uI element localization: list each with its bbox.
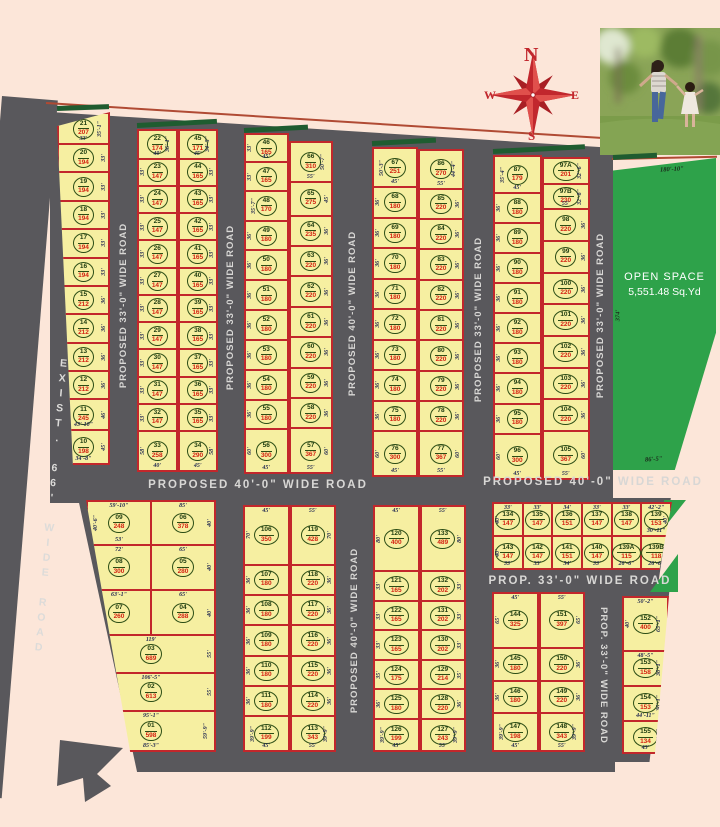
plot-number: 06 [177,515,188,524]
plot-number: 38 [192,328,203,337]
dim-label: 33' [457,612,463,620]
plot-circle: 141151 [555,543,580,563]
dim-label: 55' [562,201,570,207]
plot-number: 09 [113,515,124,524]
plot-circle: 100220 [553,279,578,299]
dim-label: 33' [376,612,382,620]
plot-area: 165 [391,646,402,654]
dim-label: 45' [194,151,202,157]
plot-area: 248 [114,523,125,531]
plot-number: 88 [512,200,523,209]
dim-label: 36' [247,321,253,329]
plot-number: 57 [305,443,316,452]
plot-circle: 103220 [553,374,578,394]
plot-area: 613 [146,693,157,701]
plot-number: 91 [512,290,523,299]
road-label-text: PROPOSED 40'-0" WIDE ROAD [349,548,360,713]
plot-area: 220 [437,705,448,713]
layout-map: EXIST. 66' WIDE ROAD N W E S [0,0,720,827]
plot-circle: 85220 [430,194,451,214]
plot-block-F: 0924859'-10"40'-6"53'0637885'40'0830072'… [86,500,216,752]
plot-number: 137 [589,512,604,521]
dim-label: 36' [375,229,381,237]
road-label-text: PROPOSED 33'-0" WIDE ROAD [596,232,607,397]
plot-circle: 52180 [256,315,277,335]
plot-101: 10122036' [543,304,590,336]
dim-label: 55' [207,688,213,696]
plot-92: 9218036' [494,313,541,343]
plot-area: 180 [261,671,272,679]
dim-label: 36' [101,296,107,304]
plot-area: 179 [512,175,523,183]
plot-69: 6918036' [373,218,417,249]
plot-area: 220 [436,386,447,394]
plot-number: 62 [305,284,316,293]
plot-number: 150 [554,656,569,665]
plot-85: 8522036' [419,189,463,219]
plot-circle: 66310 [300,152,321,172]
plot-area: 153 [640,704,651,712]
plot-circle: 146180 [503,687,528,707]
plot-circle: 132202 [430,576,455,596]
plot-107: 10718036' [244,565,289,595]
plot-circle: 64235 [300,221,321,241]
dim-label: 44'-4" [451,161,457,177]
plot-51: 5118036' [245,280,288,310]
plot-circle: 77367 [430,444,451,464]
plot-64: 6423536' [290,216,333,246]
dim-label: 33' [140,223,146,231]
dim-label: 50'-3" [379,160,385,176]
plot-area: 220 [307,611,318,619]
dim-label: 33' [209,332,215,340]
plot-61: 6122036' [290,307,333,337]
dim-label: 36' [324,318,330,326]
plot-row: 0924859'-10"40'-6"53'0637885'40' [87,501,215,545]
plot-area: 147 [591,553,602,561]
plot-area: 165 [192,309,203,317]
dim-label: 33' [504,505,512,511]
dim-label: 33' [101,154,107,162]
dim-label: 34'-5" [205,136,211,152]
plot-149: 14922036' [540,681,585,714]
dim-label: 65' [179,547,187,553]
plot-circle: 60220 [300,342,321,362]
dim-label: 33' [376,641,382,649]
dim-label: 33' [140,168,146,176]
dim-label: 33' [140,414,146,422]
plot-number: 50 [261,257,272,266]
dim-label: 26'-6" [648,561,664,567]
plot-66: 6631050'-7"55' [290,142,333,182]
plot-number: 149 [554,689,569,698]
plot-circle: 75180 [384,406,405,426]
plot-number: 121 [389,578,404,587]
plot-area: 220 [436,265,447,273]
dim-label: 60' [247,447,253,455]
plot-60: 6022036' [290,337,333,367]
plot-113: 11334339'-9"55' [291,716,336,751]
plot-circle: 83220 [430,255,451,275]
plot-52: 5218036' [245,310,288,340]
dim-label: 36' [246,667,252,675]
plot-73: 7318036' [373,340,417,371]
plot-114: 11422036' [291,686,336,716]
dim-label: 40' [625,620,631,628]
plot-35: 3516533' [179,404,218,431]
plot-number: 64 [305,223,316,232]
site-photo [600,28,720,155]
dim-label: 33' [209,386,215,394]
plot-54: 5418036' [245,370,288,400]
plot-circle: 47165 [256,167,277,187]
dim-label: 33' [80,136,88,142]
plot-26: 2614733' [138,240,177,267]
plot-number: 79 [435,378,446,387]
dim-label: 33' [140,332,146,340]
plot-139: 13915342'-2"40'30'-11" [641,503,671,536]
plot-number: 46 [261,140,272,149]
plot-34: 3429058'45' [179,431,218,471]
plot-23: 2314733' [138,159,177,186]
plot-area: 147 [152,173,163,181]
dim-label: 33' [247,173,253,181]
plot-number: 127 [435,727,450,736]
plot-circle: 142147 [525,543,550,563]
plot-number: 134 [500,512,515,521]
plot-area: 147 [152,282,163,290]
dim-label: 55' [439,743,447,749]
dim-label: 59'-10" [110,503,129,509]
dim-label: 36' [455,382,461,390]
plot-25: 2514733' [138,213,177,240]
plot-number: 02 [145,684,156,693]
plot-row: 03689119'56'-5"55' [87,635,215,673]
plot-area: 198 [78,448,89,456]
dim-label: 42'-2" [648,505,664,511]
plot-71: 7118036' [373,279,417,310]
plot-area: 288 [178,613,189,621]
plot-circle: 138147 [614,510,639,530]
plot-area: 180 [261,236,272,244]
plot-number: 133 [435,531,450,540]
dim-label: 55' [558,595,566,601]
plot-139B: 139B11826'-6" [641,536,671,569]
plot-82: 8222036' [419,280,463,310]
plot-area: 343 [307,734,318,742]
plot-number: 98 [560,217,571,226]
plot-106: 10635045'70' [244,506,289,565]
plot-88: 8818036' [494,193,541,223]
dim-label: 65'-1" [656,616,662,632]
plot-number: 18 [78,207,89,216]
plot-area: 220 [560,257,571,265]
plot-number: 155 [638,729,653,738]
plot-144: 14432545'65' [493,593,538,648]
plot-139A: 139A11526'-6" [612,536,642,569]
plot-number: 37 [192,355,203,364]
plot-area: 147 [532,520,543,528]
plot-number: 28 [152,300,163,309]
plot-circle: 109180 [254,631,279,651]
plot-number: 43 [192,191,203,200]
plot-28: 2814733' [138,295,177,322]
plot-area: 180 [512,209,523,217]
plot-number: 84 [435,226,446,235]
dim-label: 80' [376,535,382,543]
plot-circle: 01598 [140,721,161,741]
dim-label: 33' [623,505,631,511]
plot-138: 13814733' [612,503,642,536]
dim-label: 35'-7" [251,198,257,214]
plot-circle: 139A115 [612,543,642,563]
plot-area: 153 [651,520,662,528]
dim-label: 36' [246,637,252,645]
plot-area: 147 [152,309,163,317]
plot-49: 4918036' [245,221,288,251]
plot-number: 08 [113,559,124,568]
compass-south-label: S [528,128,535,144]
plot-column: 10635045'70'10718036'10818036'10918036'1… [243,505,290,752]
dim-label: 33' [140,250,146,258]
dim-label: 50'-7" [320,154,326,170]
plot-number: 104 [558,407,573,416]
plot-67: 6725150'-3"45' [373,148,417,187]
dim-label: 36' [247,411,253,419]
plot-circle: 125180 [384,694,409,714]
dim-label: 36' [576,660,582,668]
dim-label: 36' [576,693,582,701]
plot-127: 12724339'-9"55' [421,719,466,751]
plot-number: 146 [508,689,523,698]
open-space-dim-top: 180'-10" [660,165,684,173]
plot-area: 220 [560,226,571,234]
dim-label: 33' [209,277,215,285]
dim-label: 33' [534,561,542,567]
plot-circle: 39165 [187,298,208,318]
plot-circle: 53180 [256,345,277,365]
plot-number: 141 [560,545,575,554]
plot-number: 148 [554,724,569,733]
dim-label: 36' [496,385,502,393]
plot-area: 180 [261,702,272,710]
plot-number: 154 [638,695,653,704]
plot-78: 7822036' [419,401,463,431]
dim-label: 56'-5" [93,646,99,662]
plot-63: 6322036' [290,246,333,276]
dim-label: 33' [101,183,107,191]
plot-circle: 36165 [187,380,208,400]
plot-number: 75 [389,408,400,417]
plot-circle: 14212 [73,318,94,338]
dim-label: 55' [307,174,315,180]
plot-number: 25 [152,219,163,228]
plot-circle: 84220 [430,224,451,244]
plot-number: 120 [389,531,404,540]
dim-label: 36' [246,606,252,614]
plot-03: 03689119'56'-5"55' [87,635,215,673]
plot-circle: 139B118 [641,543,671,563]
plot-circle: 154153 [633,693,658,713]
dim-label: 36' [247,262,253,270]
plot-area: 180 [391,705,402,713]
plot-block-K: 15240050'-2"40'65'-1"15315848'-5"36'-1"1… [622,596,669,754]
plot-circle: 92180 [507,318,528,338]
dim-label: 34' [563,561,571,567]
plot-110: 11018036' [244,656,289,686]
dim-label: 36' [455,230,461,238]
plot-circle: 68180 [384,192,405,212]
dim-label: 36' [496,294,502,302]
plot-number: 144 [508,612,523,621]
plot-circle: 27147 [147,271,168,291]
plot-circle: 78220 [430,406,451,426]
plot-circle: 25147 [147,217,168,237]
plot-area: 251 [390,168,401,176]
plot-circle: 107180 [254,570,279,590]
plot-number: 47 [261,169,272,178]
plot-146: 14618036' [493,681,538,714]
dim-label: 95'-1" [143,713,159,719]
dim-label: 65' [179,592,187,598]
plot-circle: 04288 [172,603,193,623]
plot-17: 1719433' [58,229,109,257]
dim-label: 36' [581,380,587,388]
dim-label: 60' [324,447,330,455]
plot-circle: 05280 [172,557,193,577]
dim-label: 36' [247,232,253,240]
road-label: PROPOSED 40'-0" WIDE ROAD [108,471,408,499]
plot-31: 3114733' [138,377,177,404]
dim-label: 60'-7" [93,723,99,739]
plot-area: 165 [391,616,402,624]
plot-number: 138 [619,512,634,521]
plot-area: 300 [114,568,125,576]
plot-column: 4517134'-5"45'4416533'4316533'4216533'41… [178,129,219,472]
plot-number: 05 [177,559,188,568]
hedge-strip [57,104,109,111]
dim-label: 33' [101,211,107,219]
plot-122: 12216533' [374,601,419,631]
dim-label: 36' [581,316,587,324]
plot-number: 24 [152,191,163,200]
plot-circle: 147198 [503,722,528,742]
dim-label: 33' [504,561,512,567]
plot-06: 0637885'40' [151,501,215,545]
plot-number: 139A [617,545,637,554]
dim-label: 33' [209,168,215,176]
plot-number: 49 [261,228,272,237]
plot-area: 220 [436,204,447,212]
plot-row: 14314740'33'14214733'14115134'14014733'1… [493,536,671,569]
plot-number: 89 [512,230,523,239]
plot-103: 10322036' [543,368,590,400]
plot-area: 235 [305,231,316,239]
plot-75: 7518036' [373,401,417,432]
plot-119: 11942855'70' [291,506,336,565]
plot-46: 4616533'45' [245,134,288,162]
plot-circle: 16194 [73,262,94,282]
plot-97B: 97B23032'-8"55' [543,184,590,210]
dim-label: 26'-6" [619,561,635,567]
plot-circle: 115220 [301,661,326,681]
plot-circle: 87179 [507,165,528,185]
dim-label: 33' [209,305,215,313]
plot-area: 158 [640,669,651,677]
plot-30: 3014733' [138,349,177,376]
plot-area: 194 [78,215,89,223]
plot-area: 220 [305,262,316,270]
plot-block-D: 6725150'-3"45'6818036'6918036'7018036'71… [372,147,464,477]
plot-number: 20 [78,150,89,159]
dim-label: 33' [534,505,542,511]
plot-143: 14314740'33' [493,536,523,569]
dim-label: 36' [375,412,381,420]
plot-area: 220 [305,323,316,331]
dim-label: 36' [327,576,333,584]
plot-column: 8717935'-4"45'8818036'8918036'9018036'91… [493,155,542,480]
plot-circle: 102220 [553,342,578,362]
road-label: PROPOSED 40'-0" WIDE ROAD [336,508,373,753]
plot-area: 220 [305,383,316,391]
dim-label: 40' [495,516,501,524]
plot-circle: 137147 [584,510,609,530]
plot-56: 5630060'45' [245,429,288,473]
plot-area: 165 [192,364,203,372]
dim-label: 40' [495,549,501,557]
plot-number: 12 [78,377,89,386]
plot-116: 11622036' [291,625,336,655]
dim-label: 36' [496,355,502,363]
plot-circle: 150220 [549,654,574,674]
plot-29: 2914733' [138,322,177,349]
plot-circle: 130202 [430,635,455,655]
plot-area: 180 [512,239,523,247]
plot-32: 3214733' [138,404,177,431]
plot-number: 123 [389,637,404,646]
dim-label: 60' [375,450,381,458]
plot-number: 39 [192,300,203,309]
open-space-title: OPEN SPACE [624,271,705,283]
plot-circle: 38165 [187,326,208,346]
plot-76: 7630060'45' [373,431,417,476]
plot-circle: 24147 [147,189,168,209]
plot-number: 33 [152,443,163,452]
plot-circle: 56300 [256,441,277,461]
plot-90: 9018036' [494,253,541,283]
dim-label: 45' [262,154,270,160]
plot-area: 258 [152,452,163,460]
road-label: PROP. 33'-0" WIDE ROAD [488,569,672,592]
plot-151: 15139755'65' [540,593,585,648]
plot-number: 118 [306,572,321,581]
plot-area: 214 [437,675,448,683]
plot-89: 8918036' [494,223,541,253]
plot-circle: 70180 [384,253,405,273]
plot-81: 8122036' [419,310,463,340]
dim-label: 33' [247,144,253,152]
plot-circle: 48170 [256,196,277,216]
plot-area: 147 [152,227,163,235]
plot-circle: 127243 [430,725,455,745]
plot-36: 3616533' [179,377,218,404]
dim-label: 36' [324,409,330,417]
plot-118: 11822036' [291,565,336,595]
plot-circle: 28147 [147,298,168,318]
dim-label: 36' [247,351,253,359]
plot-05: 0528065'40' [151,545,215,590]
dim-label: 80' [457,535,463,543]
